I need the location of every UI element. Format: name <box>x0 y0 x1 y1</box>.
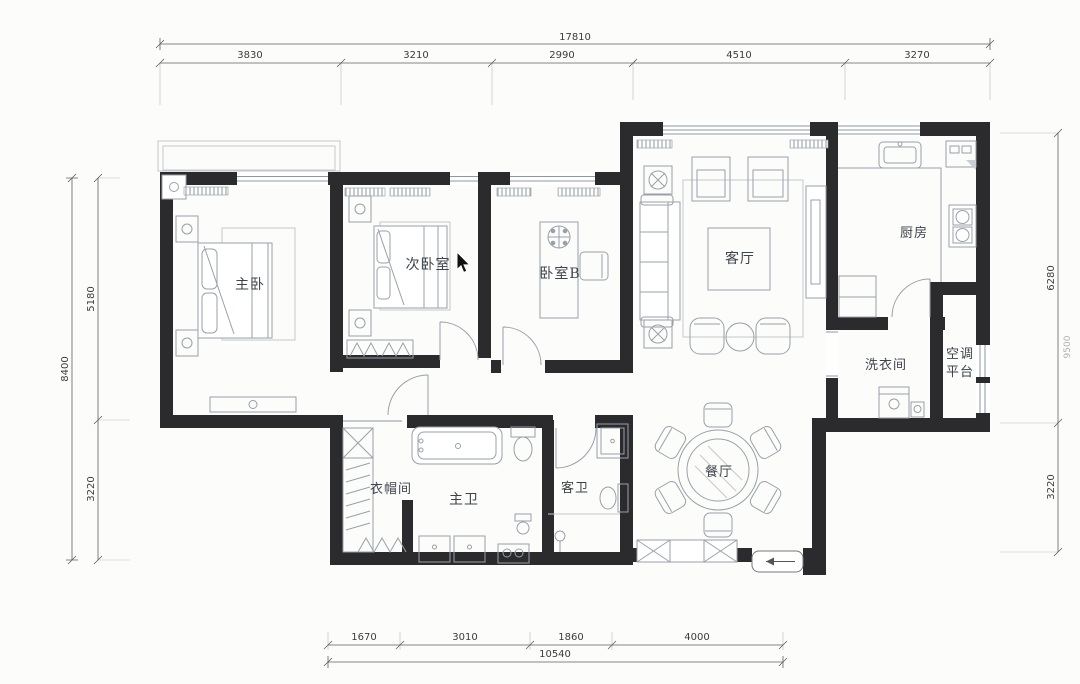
master-bedroom-furniture <box>176 216 296 412</box>
sofa <box>640 195 680 327</box>
washing-machine <box>879 387 909 418</box>
master-dresser <box>210 397 296 412</box>
dim-right-seg-2: 3220 <box>1046 474 1057 499</box>
room-label-second-bedroom: 次卧室 <box>406 256 451 273</box>
dining-chair <box>653 424 688 460</box>
dining-chair <box>653 479 688 515</box>
entry-door <box>752 551 803 572</box>
dim-left-seg-2: 3220 <box>86 476 97 501</box>
dining-chair <box>748 479 783 515</box>
mouse-cursor <box>457 252 470 272</box>
guest-bathroom-door <box>556 428 596 468</box>
second-bedroom-door <box>440 322 478 360</box>
dim-bottom-total: 10540 <box>539 649 571 660</box>
shower-head <box>555 531 565 552</box>
window-sill-hatches <box>184 140 828 196</box>
room-label-master-bedroom: 主卧 <box>235 277 265 293</box>
dim-top-seg-3: 2990 <box>549 50 574 61</box>
dining-chair <box>748 424 783 460</box>
dim-bottom-seg-4: 4000 <box>684 632 709 643</box>
dim-bottom-seg-1: 1670 <box>351 632 376 643</box>
floor-plan-drawing: 17810 3830 3210 2990 4510 3270 8400 5180… <box>0 0 1080 684</box>
armchair <box>692 157 730 201</box>
desk-chair <box>580 252 608 280</box>
nightstand <box>176 216 198 242</box>
lounge-chair <box>756 318 790 354</box>
corner-unit <box>946 141 976 170</box>
second-bedroom-furniture <box>347 196 450 358</box>
dim-bottom-seg-3: 1860 <box>558 632 583 643</box>
room-label-guest-bathroom: 客卫 <box>561 480 589 496</box>
room-label-laundry: 洗衣间 <box>865 357 907 373</box>
master-bedroom-door <box>388 375 428 415</box>
kitchen-counter <box>838 168 941 282</box>
speaker <box>644 320 672 348</box>
dim-top-seg-5: 3270 <box>904 50 929 61</box>
room-label-living-room: 客厅 <box>725 250 755 267</box>
room-label-master-bathroom: 主卫 <box>449 492 479 508</box>
dim-left-total: 8400 <box>60 356 71 381</box>
bathtub <box>412 427 502 464</box>
dim-top-seg-4: 4510 <box>726 50 751 61</box>
dim-top-total: 17810 <box>559 32 591 43</box>
low-counter <box>839 276 876 317</box>
tv-cabinet <box>806 186 826 298</box>
kitchen-door <box>892 279 930 317</box>
laundry-furniture <box>879 387 924 418</box>
armchair <box>748 157 788 201</box>
dim-bottom-seg-2: 3010 <box>452 632 477 643</box>
kitchen-sink <box>879 142 921 168</box>
dim-left-seg-1: 5180 <box>86 286 97 311</box>
dim-right-seg-1: 6280 <box>1046 265 1057 290</box>
dim-top-seg-2: 3210 <box>403 50 428 61</box>
nightstand <box>349 310 371 336</box>
toilet <box>511 427 535 461</box>
nightstand <box>176 330 198 356</box>
nightstand <box>349 196 371 222</box>
room-label-cloakroom: 衣帽间 <box>370 481 412 497</box>
dining-chair <box>704 403 732 427</box>
bidet <box>515 514 531 534</box>
floor-drain <box>911 402 924 417</box>
dim-top-seg-1: 3830 <box>237 50 262 61</box>
room-label-ac-platform-1: 空调 <box>946 347 974 362</box>
dining-chair <box>704 513 732 537</box>
dim-right-total: 9500 <box>1063 335 1073 358</box>
room-label-bedroom-b: 卧室B <box>539 265 580 282</box>
dining-furniture <box>637 403 803 572</box>
bedroom-b-door <box>503 327 541 365</box>
room-label-dining-room: 餐厅 <box>705 464 733 480</box>
speaker <box>644 166 672 194</box>
room-label-ac-platform-2: 平台 <box>946 365 974 380</box>
bay-window-outline <box>158 141 340 171</box>
room-label-kitchen: 厨房 <box>900 225 928 241</box>
floor-plan-canvas: 17810 3830 3210 2990 4510 3270 8400 5180… <box>0 0 1080 684</box>
lounge-chair <box>690 318 724 354</box>
sideboard <box>637 540 737 562</box>
stove <box>949 205 976 247</box>
